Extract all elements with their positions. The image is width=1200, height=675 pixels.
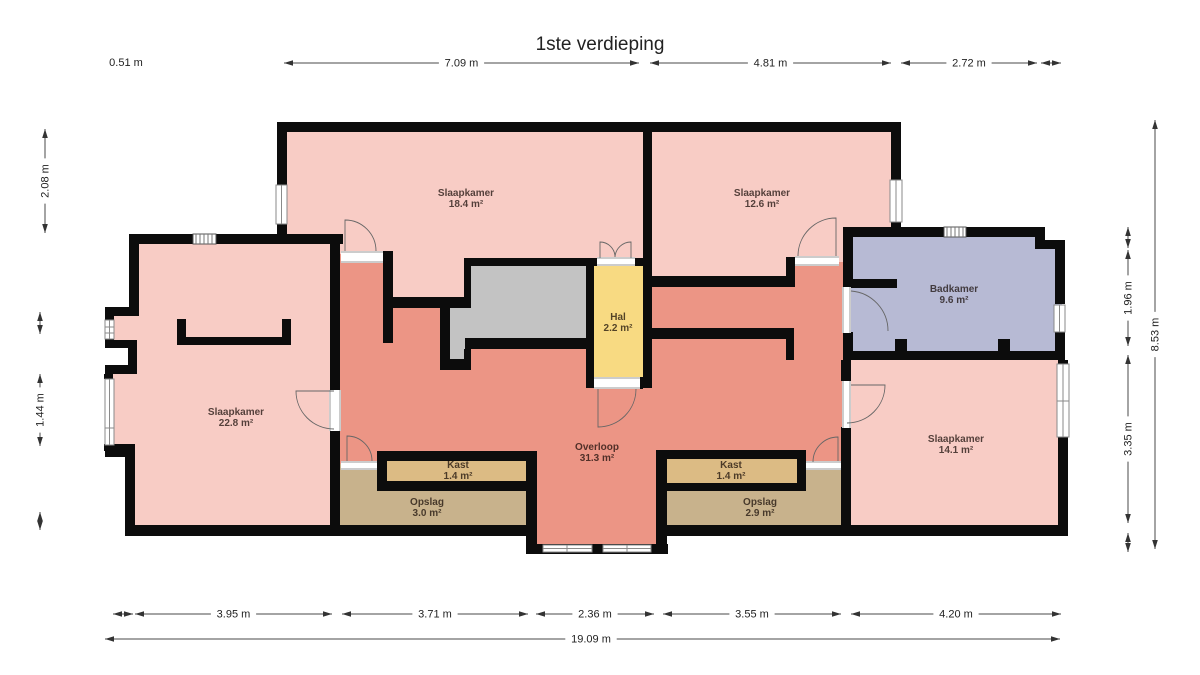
svg-text:Opslag: Opslag [410,497,444,508]
svg-text:Slaapkamer: Slaapkamer [928,434,984,445]
svg-text:19.09 m: 19.09 m [571,634,611,646]
svg-text:3.55 m: 3.55 m [735,609,769,621]
svg-text:1.44 m: 1.44 m [35,393,47,427]
svg-text:4.20 m: 4.20 m [939,609,973,621]
svg-text:Hal: Hal [610,312,626,323]
svg-text:4.81 m: 4.81 m [754,58,788,70]
svg-text:1.4 m²: 1.4 m² [717,471,747,482]
svg-text:31.3 m²: 31.3 m² [580,453,615,464]
svg-text:12.6 m²: 12.6 m² [745,199,780,210]
svg-text:Overloop: Overloop [575,442,619,453]
svg-text:8.53 m: 8.53 m [1150,318,1162,352]
svg-text:14.1 m²: 14.1 m² [939,445,974,456]
svg-text:3.71 m: 3.71 m [418,609,452,621]
svg-text:18.4 m²: 18.4 m² [449,199,484,210]
svg-text:7.09 m: 7.09 m [445,58,479,70]
svg-text:9.6 m²: 9.6 m² [940,295,970,306]
svg-text:Opslag: Opslag [743,497,777,508]
svg-text:2.72 m: 2.72 m [952,58,986,70]
svg-text:Badkamer: Badkamer [930,284,978,295]
svg-text:Kast: Kast [720,460,742,471]
svg-text:3.0 m²: 3.0 m² [413,508,443,519]
svg-text:1ste verdieping: 1ste verdieping [536,34,665,55]
svg-text:1.96 m: 1.96 m [1123,281,1135,315]
svg-text:3.35 m: 3.35 m [1123,422,1135,456]
svg-text:Kast: Kast [447,460,469,471]
svg-text:22.8 m²: 22.8 m² [219,418,254,429]
svg-text:Slaapkamer: Slaapkamer [208,407,264,418]
svg-text:1.4 m²: 1.4 m² [444,471,474,482]
svg-text:Slaapkamer: Slaapkamer [438,188,494,199]
svg-text:2.2 m²: 2.2 m² [604,323,634,334]
svg-text:0.51 m: 0.51 m [109,57,143,69]
svg-text:2.08 m: 2.08 m [40,164,52,198]
svg-text:2.9 m²: 2.9 m² [746,508,776,519]
svg-text:3.95 m: 3.95 m [217,609,251,621]
svg-text:2.36 m: 2.36 m [578,609,612,621]
svg-text:Slaapkamer: Slaapkamer [734,188,790,199]
